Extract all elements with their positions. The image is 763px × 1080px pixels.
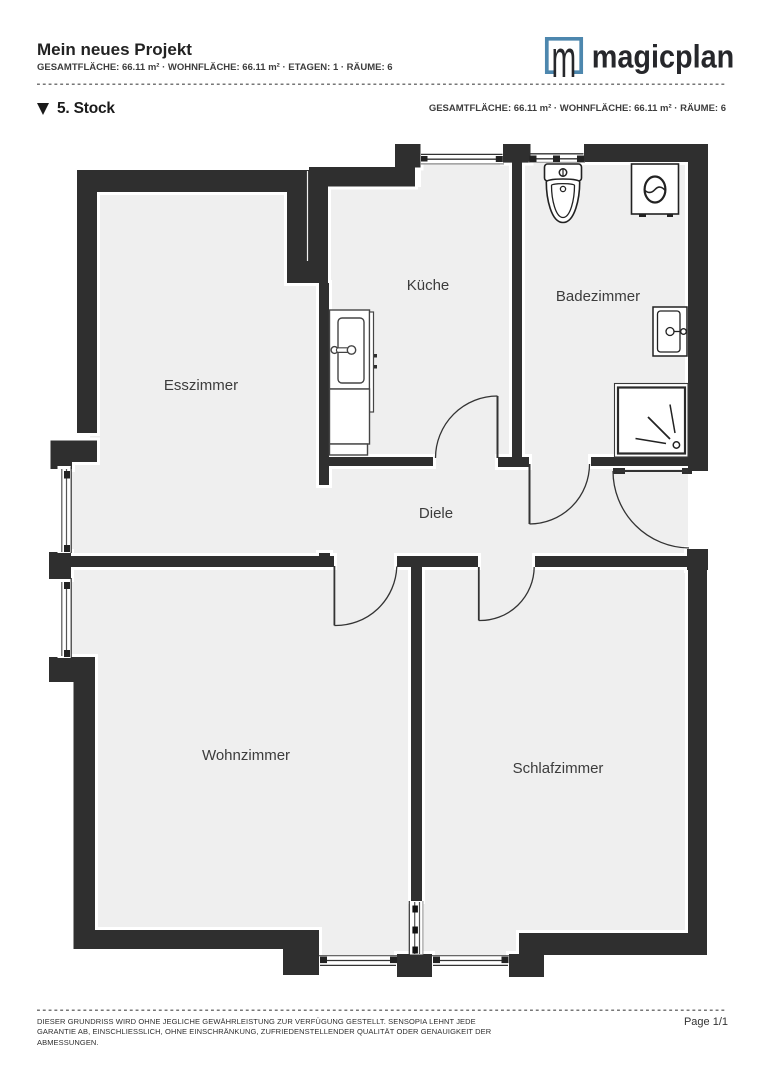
svg-text:Schlafzimmer: Schlafzimmer (513, 760, 604, 777)
svg-text:Esszimmer: Esszimmer (164, 377, 238, 394)
svg-text:Küche: Küche (407, 277, 450, 294)
svg-text:Diele: Diele (419, 505, 453, 522)
svg-text:Wohnzimmer: Wohnzimmer (202, 747, 290, 764)
svg-text:Badezimmer: Badezimmer (556, 288, 640, 305)
